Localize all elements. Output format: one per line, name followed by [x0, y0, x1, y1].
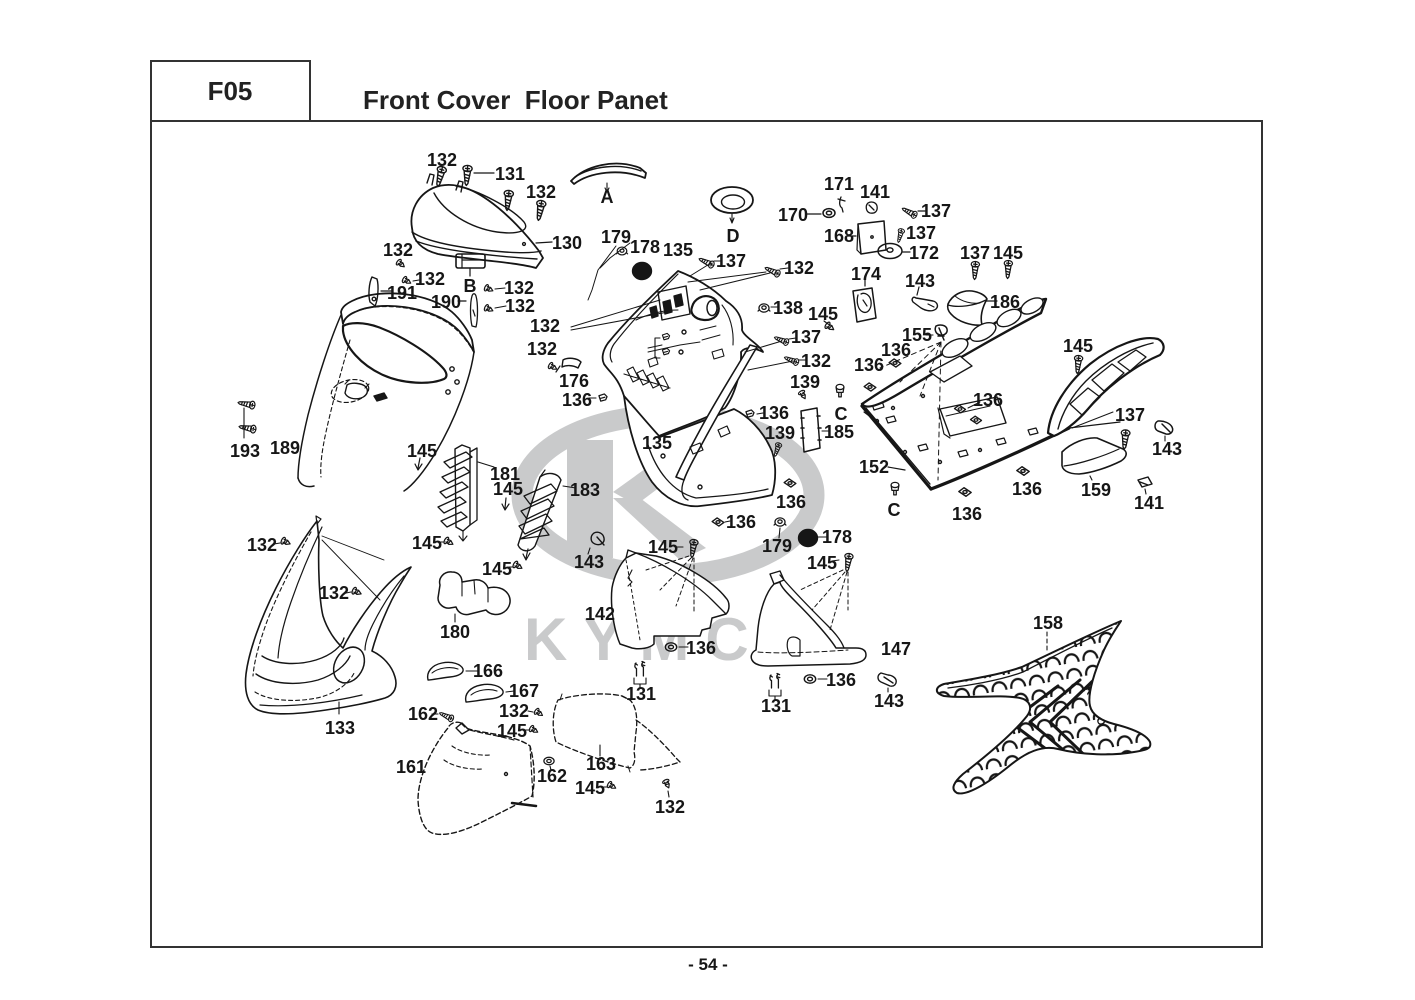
svg-text:137: 137: [906, 223, 936, 243]
svg-text:131: 131: [626, 684, 656, 704]
svg-text:185: 185: [824, 422, 854, 442]
svg-text:145: 145: [575, 778, 605, 798]
svg-text:A: A: [601, 187, 614, 207]
svg-text:132: 132: [527, 339, 557, 359]
svg-text:136: 136: [759, 403, 789, 423]
svg-text:143: 143: [874, 691, 904, 711]
svg-text:163: 163: [586, 754, 616, 774]
svg-text:172: 172: [909, 243, 939, 263]
svg-text:135: 135: [663, 240, 693, 260]
svg-text:190: 190: [431, 292, 461, 312]
svg-text:147: 147: [881, 639, 911, 659]
svg-text:143: 143: [574, 552, 604, 572]
svg-text:193: 193: [230, 441, 260, 461]
svg-text:136: 136: [686, 638, 716, 658]
svg-text:136: 136: [973, 390, 1003, 410]
svg-text:159: 159: [1081, 480, 1111, 500]
svg-text:138: 138: [773, 298, 803, 318]
svg-text:139: 139: [790, 372, 820, 392]
svg-text:142: 142: [585, 604, 615, 624]
svg-text:176: 176: [559, 371, 589, 391]
svg-text:131: 131: [761, 696, 791, 716]
svg-text:179: 179: [762, 536, 792, 556]
svg-text:132: 132: [504, 278, 534, 298]
svg-text:136: 136: [881, 340, 911, 360]
svg-text:136: 136: [726, 512, 756, 532]
svg-text:183: 183: [570, 480, 600, 500]
svg-text:132: 132: [499, 701, 529, 721]
svg-text:162: 162: [408, 704, 438, 724]
svg-text:145: 145: [993, 243, 1023, 263]
svg-text:136: 136: [826, 670, 856, 690]
svg-text:189: 189: [270, 438, 300, 458]
svg-text:F05: F05: [208, 76, 253, 106]
svg-text:132: 132: [415, 269, 445, 289]
svg-text:167: 167: [509, 681, 539, 701]
svg-text:132: 132: [526, 182, 556, 202]
svg-text:132: 132: [505, 296, 535, 316]
svg-text:136: 136: [562, 390, 592, 410]
svg-text:132: 132: [247, 535, 277, 555]
svg-text:132: 132: [801, 351, 831, 371]
svg-text:186: 186: [990, 292, 1020, 312]
svg-text:C: C: [888, 500, 901, 520]
svg-text:136: 136: [1012, 479, 1042, 499]
svg-text:170: 170: [778, 205, 808, 225]
svg-text:C: C: [835, 404, 848, 424]
svg-text:145: 145: [807, 553, 837, 573]
svg-text:179: 179: [601, 227, 631, 247]
svg-text:141: 141: [1134, 493, 1164, 513]
svg-text:145: 145: [412, 533, 442, 553]
svg-text:161: 161: [396, 757, 426, 777]
svg-text:136: 136: [952, 504, 982, 524]
svg-text:132: 132: [427, 150, 457, 170]
svg-text:143: 143: [1152, 439, 1182, 459]
svg-text:171: 171: [824, 174, 854, 194]
svg-text:152: 152: [859, 457, 889, 477]
svg-text:131: 131: [495, 164, 525, 184]
svg-text:136: 136: [854, 355, 884, 375]
svg-text:145: 145: [493, 479, 523, 499]
svg-text:137: 137: [716, 251, 746, 271]
svg-text:168: 168: [824, 226, 854, 246]
svg-text:139: 139: [765, 423, 795, 443]
svg-text:180: 180: [440, 622, 470, 642]
svg-text:145: 145: [497, 721, 527, 741]
svg-text:B: B: [464, 276, 477, 296]
svg-text:Front Cover Floor Panet: Front Cover Floor Panet: [363, 85, 668, 115]
svg-text:132: 132: [319, 583, 349, 603]
svg-text:166: 166: [473, 661, 503, 681]
svg-text:145: 145: [407, 441, 437, 461]
svg-text:130: 130: [552, 233, 582, 253]
svg-text:178: 178: [630, 237, 660, 257]
svg-text:141: 141: [860, 182, 890, 202]
svg-text:- 54 -: - 54 -: [688, 955, 728, 974]
svg-text:137: 137: [960, 243, 990, 263]
svg-text:132: 132: [655, 797, 685, 817]
svg-text:132: 132: [784, 258, 814, 278]
svg-text:137: 137: [921, 201, 951, 221]
svg-text:D: D: [727, 226, 740, 246]
svg-text:133: 133: [325, 718, 355, 738]
svg-text:145: 145: [648, 537, 678, 557]
svg-text:178: 178: [822, 527, 852, 547]
svg-text:162: 162: [537, 766, 567, 786]
svg-text:137: 137: [1115, 405, 1145, 425]
svg-text:191: 191: [387, 283, 417, 303]
svg-text:135: 135: [642, 433, 672, 453]
svg-text:143: 143: [905, 271, 935, 291]
svg-text:158: 158: [1033, 613, 1063, 633]
svg-text:145: 145: [1063, 336, 1093, 356]
svg-text:136: 136: [776, 492, 806, 512]
svg-text:145: 145: [808, 304, 838, 324]
svg-text:174: 174: [851, 264, 881, 284]
svg-text:145: 145: [482, 559, 512, 579]
svg-text:132: 132: [530, 316, 560, 336]
svg-text:132: 132: [383, 240, 413, 260]
svg-text:137: 137: [791, 327, 821, 347]
